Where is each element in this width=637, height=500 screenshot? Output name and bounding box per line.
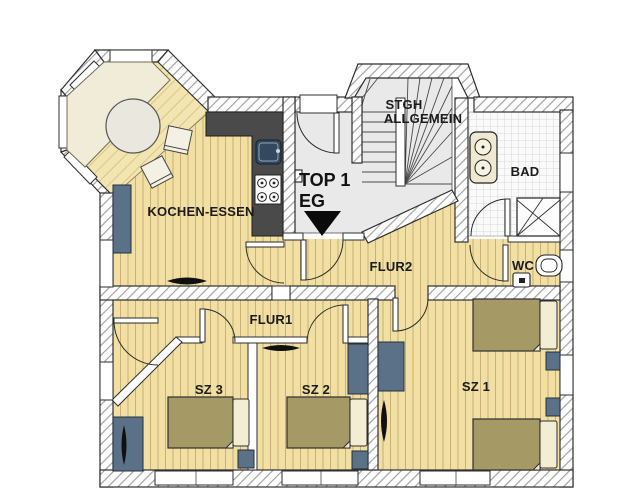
bed-sz1-top [473,299,557,351]
label-wc: WC [512,258,534,273]
label-stairwell-2: ALLGEMEIN [384,111,462,126]
label-kitchen: KOCHEN-ESSEN [147,204,254,219]
sz2-door-leaf [343,305,348,343]
label-bedroom1: SZ 1 [462,379,490,394]
window-east-sz1 [560,355,573,395]
vestibule-door-leaf [301,240,306,280]
bed-sz1-bottom [473,419,557,470]
window-east-bath [560,153,573,192]
label-unit: TOP 1 [299,170,350,190]
kitchen-cabinet [113,185,131,253]
sz3-door-leaf [200,309,205,342]
wall-west [100,193,113,487]
wall-mid-c [428,286,560,300]
label-hall2: FLUR2 [370,259,413,274]
bed-sz3 [168,397,249,448]
label-bedroom2: SZ 2 [302,382,330,397]
window-south-sz2 [282,471,358,485]
window-south-sz3 [155,471,233,485]
dining-table [106,99,160,153]
wall-vestibule-south-a [283,233,303,240]
wardrobe-sz1 [378,342,404,391]
label-stairwell-1: STGH [386,97,423,112]
wall-kitchen-vestibule [283,97,295,238]
label-bedroom3: SZ 3 [195,382,223,397]
wall-mid-a [100,286,272,300]
label-floor: EG [299,191,325,211]
chair-1 [164,126,192,154]
sz1-door-floor-patch [395,286,428,300]
bath-door-leaf [505,199,510,236]
floorplan-page: KOCHEN-ESSEN STGH ALLGEMEIN TOP 1 EG FLU… [0,0,637,500]
wc-door-leaf [503,245,508,281]
nightstand-sz1-b [546,398,560,416]
wall-vestibule-south-b [343,233,364,240]
kitchen-faucet [276,149,280,153]
double-washbasin [470,132,497,183]
nightstand-sz1-a [546,352,560,370]
label-bath: BAD [511,164,540,179]
label-hall1: FLUR1 [250,312,293,327]
wall-bath-north [474,97,573,112]
kitchen-door-leaf [246,242,284,247]
wall-flur1-south-b [233,337,307,343]
nightstand-sz2 [352,451,368,469]
shower [517,198,560,236]
wardrobe-sz3 [113,417,143,471]
bay-window-top [110,50,152,62]
wall-mid-b [290,286,395,300]
window-west-1 [100,240,113,287]
window-west-2 [100,362,113,400]
window-south-sz1 [420,471,490,485]
bed-sz2 [287,397,367,448]
wall-kitchen-north [208,97,295,112]
wall-bath-south [508,236,560,242]
wardrobe-sz2 [348,344,368,394]
entrance-opening [300,95,337,113]
threshold-hall1-hall2 [272,286,290,300]
wall-sz2-sz1 [368,299,378,470]
nightstand-sz3 [238,450,254,468]
floorplan-drawing: KOCHEN-ESSEN STGH ALLGEMEIN TOP 1 EG FLU… [0,0,637,500]
sz1-door-leaf [393,298,398,331]
flur1-door-leaf [114,318,158,323]
entrance-door-leaf [334,113,339,153]
wall-stair-west [352,97,362,163]
kitchen-stove [255,175,281,204]
